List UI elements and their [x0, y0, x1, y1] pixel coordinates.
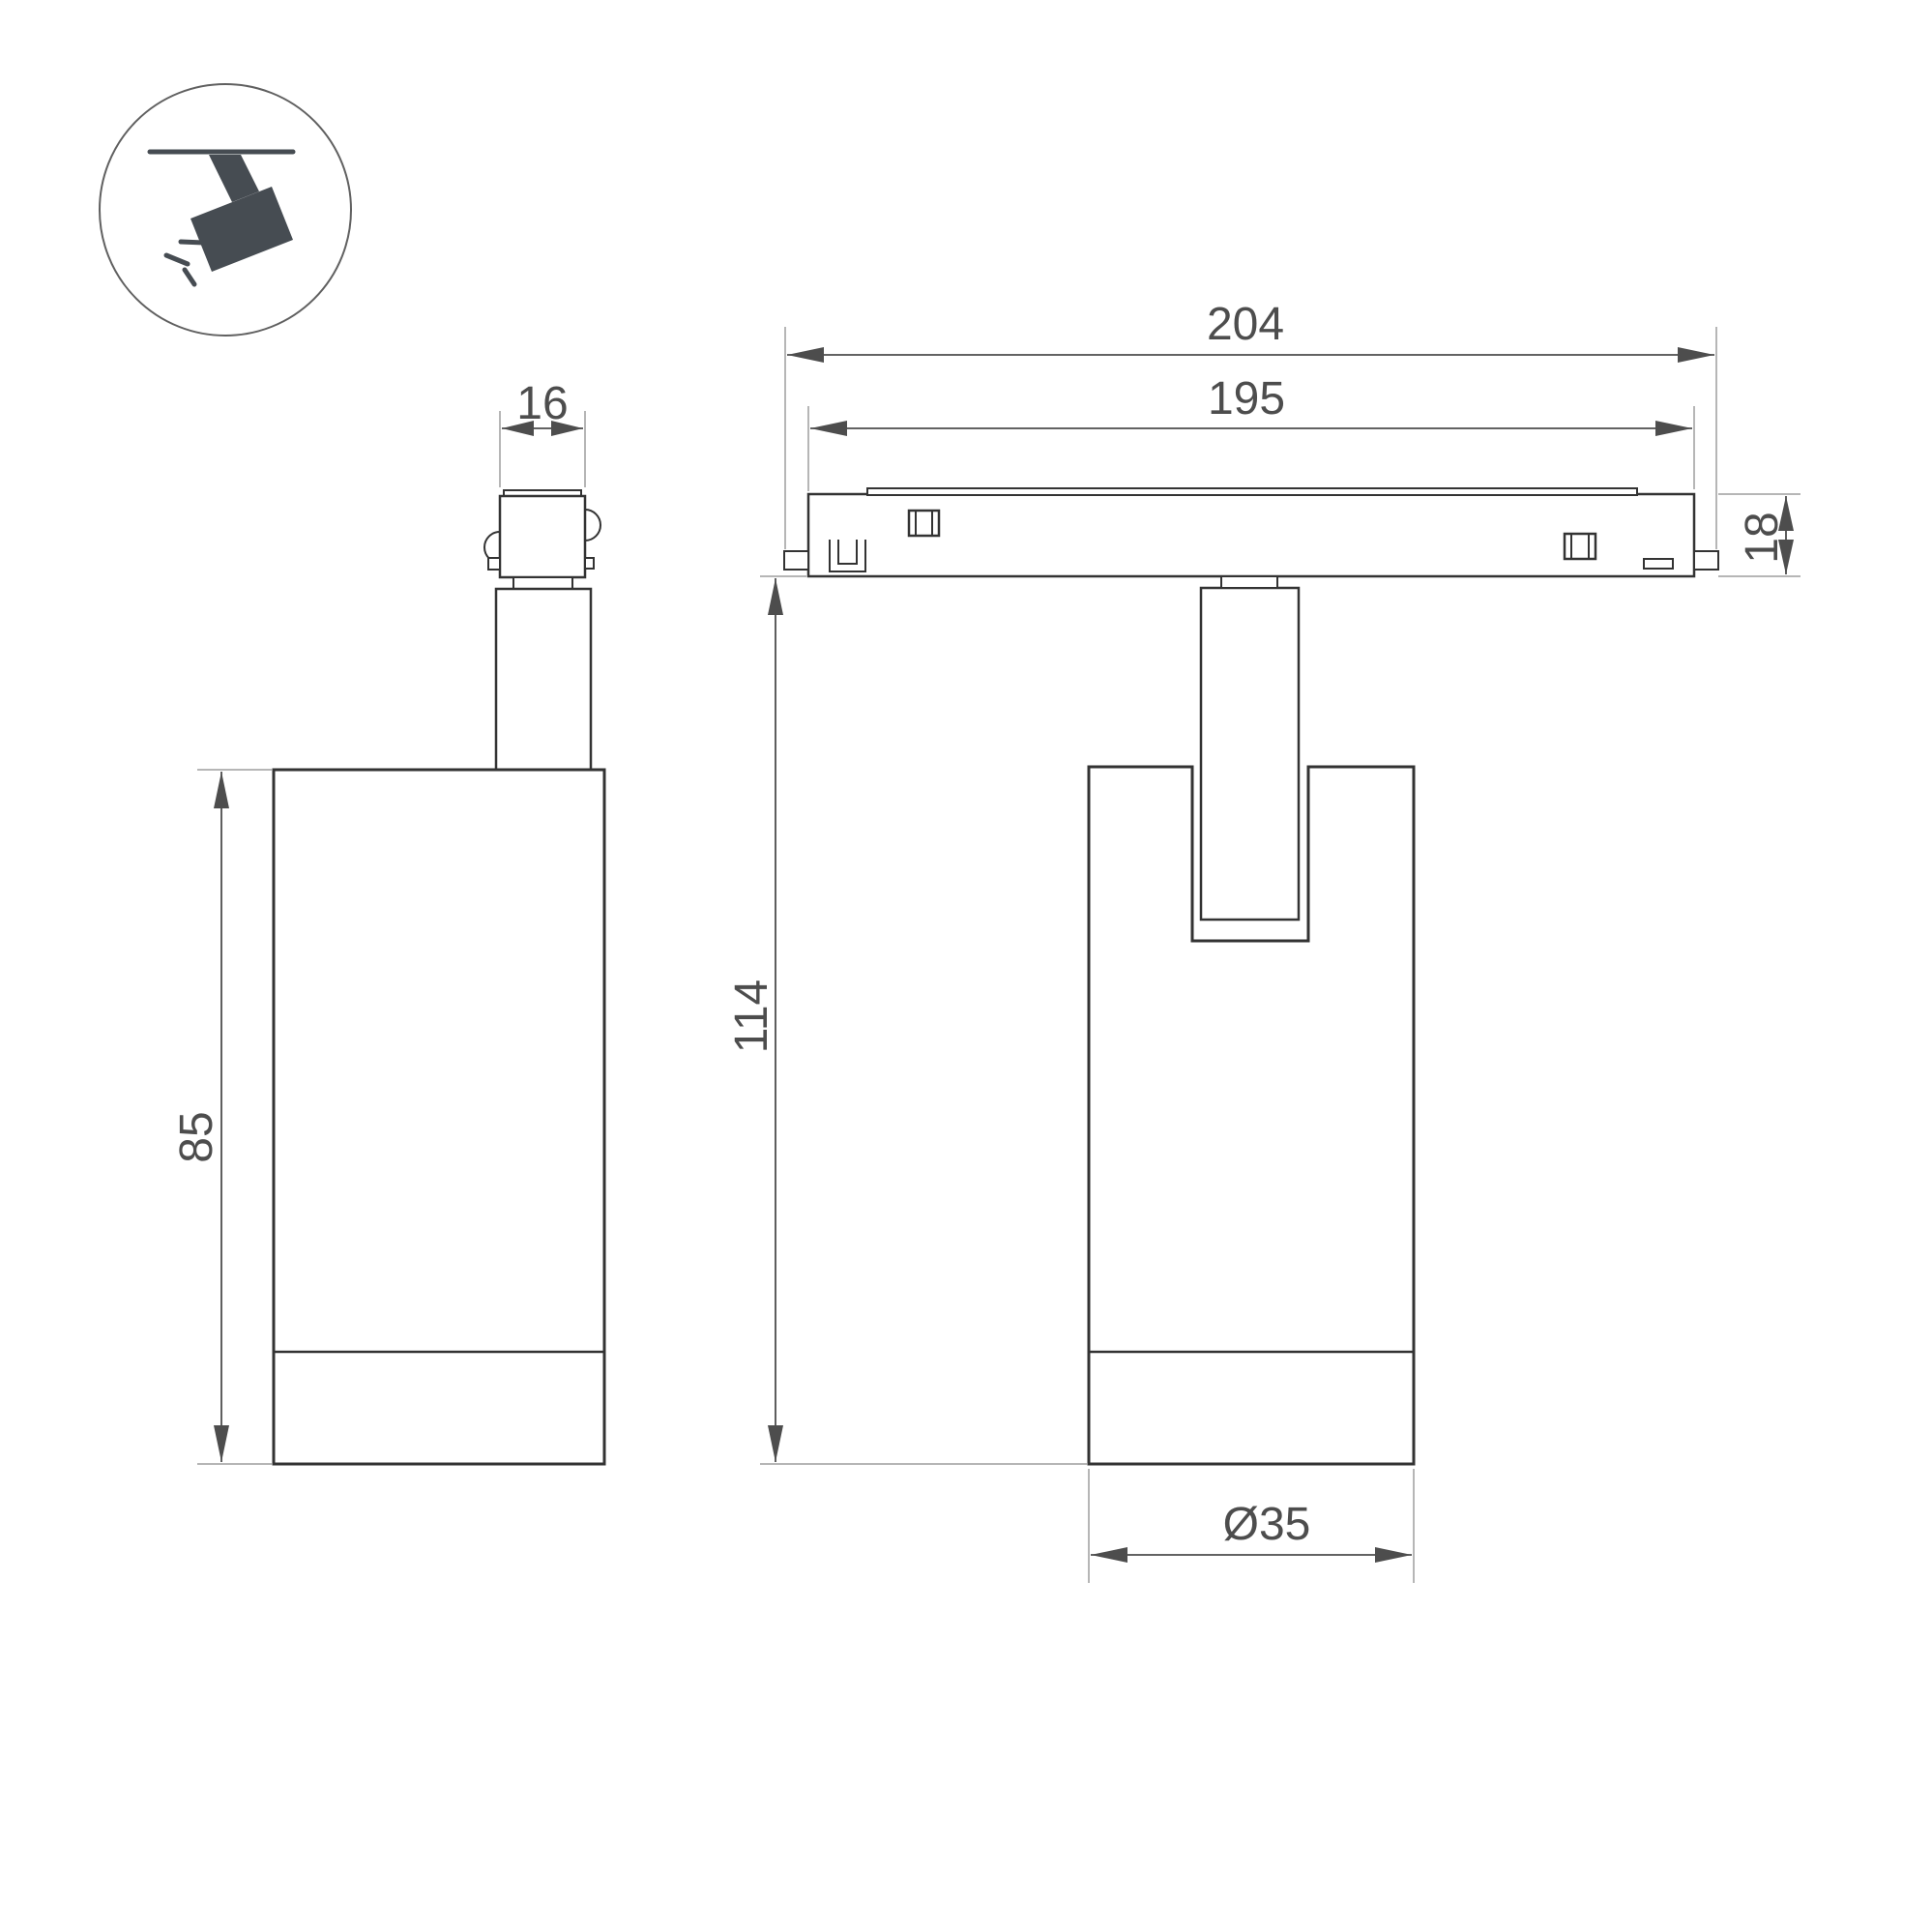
dimension-housing-height: 85 [171, 770, 272, 1464]
front-view [784, 488, 1718, 1464]
dimension-track-length: 195 [808, 373, 1694, 491]
track-end-tab-left [784, 551, 808, 570]
dimension-track-height: 18 [1718, 494, 1800, 576]
front-neck [1221, 576, 1277, 588]
spotlight-icon [100, 84, 351, 336]
technical-drawing-page: 16 204 195 18 114 [0, 0, 1932, 1932]
side-stem [496, 589, 591, 770]
dim-track-length-label: 195 [1208, 373, 1285, 424]
dim-adapter-width-label: 16 [516, 378, 568, 429]
track-body [808, 494, 1694, 576]
dim-overall-height-label: 114 [726, 980, 777, 1054]
dimension-overall-height: 114 [726, 576, 1087, 1464]
track-end-tab-right [1694, 551, 1718, 570]
dim-overall-length-label: 204 [1207, 299, 1284, 350]
side-adapter-box [500, 496, 585, 577]
dim-housing-diameter-label: Ø35 [1223, 1499, 1311, 1550]
side-view [274, 490, 604, 1464]
track-window-right [1565, 534, 1595, 559]
dim-housing-height-label: 85 [171, 1111, 222, 1162]
technical-drawing: 16 204 195 18 114 [0, 0, 1932, 1932]
dimension-adapter-width: 16 [500, 378, 585, 487]
track-window-left [909, 511, 939, 536]
track-top-plate [867, 488, 1637, 495]
dimension-housing-diameter: Ø35 [1089, 1469, 1414, 1583]
dim-track-height-label: 18 [1737, 512, 1788, 563]
track-slot-right [1644, 559, 1673, 569]
side-housing [274, 770, 604, 1464]
front-stem [1201, 588, 1299, 920]
icon-light-ray-1 [181, 242, 204, 243]
side-neck [513, 577, 572, 589]
side-adapter-ear-right [585, 510, 600, 541]
side-adapter-tab-left [488, 558, 500, 570]
side-adapter-tab-right [585, 558, 594, 569]
